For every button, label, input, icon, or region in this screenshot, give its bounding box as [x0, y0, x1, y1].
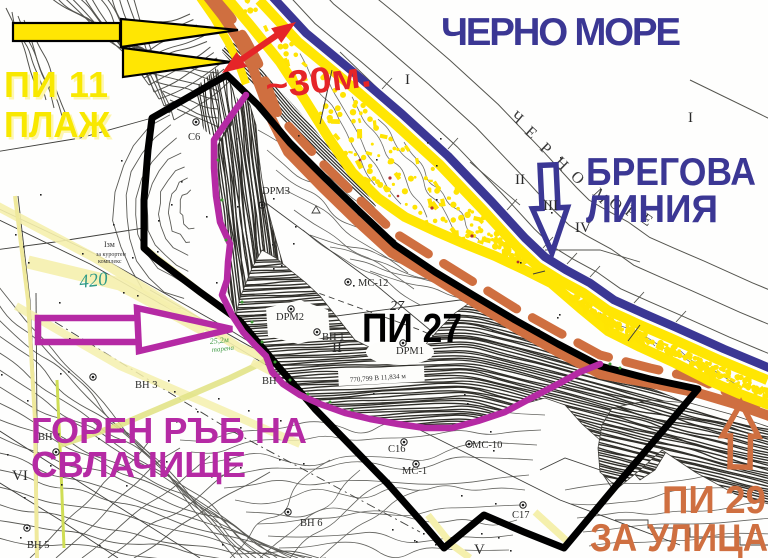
svg-text:ПИ 11: ПИ 11	[4, 64, 108, 105]
svg-text:420: 420	[78, 269, 109, 293]
svg-text:ПИ 29: ПИ 29	[662, 479, 766, 522]
svg-text:III: III	[543, 198, 558, 214]
svg-text:за курортен: за курортен	[96, 252, 127, 258]
svg-text:I: I	[405, 72, 410, 88]
svg-text:II: II	[515, 172, 525, 188]
svg-text:ЧЕРНО МОРЕ: ЧЕРНО МОРЕ	[441, 11, 681, 54]
svg-text:DPМ2: DPМ2	[276, 312, 304, 323]
svg-text:V: V	[474, 542, 485, 558]
svg-text:II: II	[332, 340, 342, 356]
svg-text:С17: С17	[512, 510, 530, 521]
svg-text:ВН: ВН	[262, 376, 277, 387]
svg-text:VI: VI	[12, 468, 28, 484]
svg-text:ПИ 27: ПИ 27	[362, 305, 462, 351]
svg-text:СВЛАЧИЩЕ: СВЛАЧИЩЕ	[31, 444, 246, 485]
svg-text:ВН 6: ВН 6	[300, 518, 322, 529]
svg-text:DPМ3: DPМ3	[262, 186, 290, 197]
svg-text:ВН 3: ВН 3	[135, 380, 157, 391]
svg-text:МС-1: МС-1	[402, 466, 427, 477]
svg-text:МС-10: МС-10	[472, 440, 502, 451]
svg-text:ЛИНИЯ: ЛИНИЯ	[586, 188, 718, 231]
svg-text:С16: С16	[388, 444, 406, 455]
svg-text:ЗА УЛИЦА: ЗА УЛИЦА	[590, 517, 768, 558]
svg-text:27: 27	[390, 299, 405, 314]
svg-text:С6: С6	[188, 132, 200, 143]
svg-text:ПЛАЖ: ПЛАЖ	[4, 104, 110, 145]
svg-text:комплекс: комплекс	[98, 259, 122, 265]
svg-text:МС-12: МС-12	[358, 278, 388, 289]
svg-text:Iзм: Iзм	[104, 240, 115, 249]
svg-text:I: I	[688, 110, 693, 126]
svg-text:ВН 5: ВН 5	[27, 540, 49, 551]
